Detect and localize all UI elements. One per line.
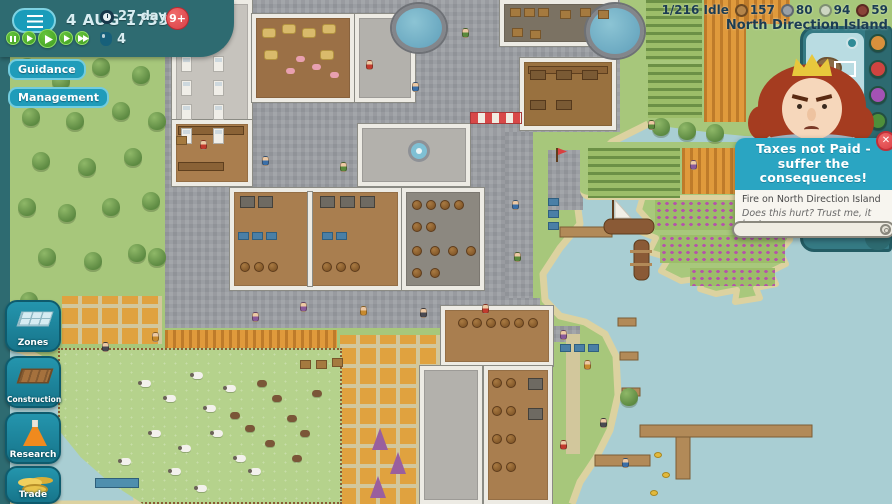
resource-value: 80	[796, 3, 813, 17]
bin	[252, 232, 263, 240]
resource-bricks: 59	[856, 3, 888, 17]
mach	[320, 196, 335, 208]
queen-mouth	[804, 126, 819, 133]
game-screen: 4 AUG 1733 27 days 9+ 4 1/216 Idle 157 8…	[0, 0, 892, 504]
bed	[181, 104, 192, 120]
bin	[548, 198, 559, 206]
play-icon	[45, 35, 53, 44]
ink-count: 4	[117, 32, 126, 47]
tree	[112, 102, 130, 120]
flag-pole	[556, 148, 558, 162]
pond	[586, 4, 644, 58]
crate	[176, 136, 187, 145]
crate	[512, 28, 523, 37]
hay	[282, 24, 296, 34]
bed	[181, 56, 192, 72]
barrel	[492, 434, 502, 444]
barrel	[466, 246, 476, 256]
barrel	[350, 262, 360, 272]
barrel	[430, 268, 440, 278]
footpath	[566, 334, 580, 454]
sheep	[140, 380, 151, 387]
sheep	[225, 385, 236, 392]
barrel	[254, 262, 264, 272]
gold	[662, 472, 670, 478]
market-awning	[470, 112, 522, 124]
cow	[245, 425, 255, 432]
villager	[512, 200, 519, 210]
compass-icon	[846, 37, 858, 49]
crate	[510, 8, 521, 17]
brewery	[441, 306, 553, 366]
bed	[213, 128, 224, 144]
queen-eye	[822, 104, 827, 109]
tree	[148, 248, 166, 266]
notification-badge[interactable]: 9+	[166, 7, 189, 30]
villager	[648, 120, 655, 130]
barrel	[336, 262, 346, 272]
table	[530, 100, 546, 110]
barrel	[412, 222, 422, 232]
resource-value: 94	[834, 3, 851, 17]
sheep	[120, 458, 131, 465]
tree	[142, 192, 160, 210]
tree	[38, 248, 56, 266]
barrel	[492, 462, 502, 472]
tree	[706, 124, 724, 142]
villager	[360, 306, 367, 316]
crate	[598, 10, 609, 19]
villager	[560, 330, 567, 340]
water-trough	[95, 478, 139, 488]
mach	[528, 408, 543, 420]
stone-icon	[781, 4, 794, 17]
trade-label: Trade	[7, 490, 59, 500]
barrel	[492, 406, 502, 416]
bin	[574, 344, 585, 352]
villager	[300, 302, 307, 312]
sheep	[180, 445, 191, 452]
sheep	[250, 468, 261, 475]
hay	[322, 24, 336, 34]
road	[505, 132, 533, 308]
fountain	[408, 140, 430, 162]
table	[530, 70, 546, 80]
bin	[238, 232, 249, 240]
tree	[148, 112, 166, 130]
construction-floor-icon	[17, 369, 54, 384]
villager	[690, 160, 697, 170]
villager	[366, 60, 373, 70]
cow	[257, 380, 267, 387]
fast-icon	[83, 35, 89, 42]
ink-pot-icon	[100, 32, 112, 46]
crate	[300, 360, 311, 369]
flower-farm	[660, 235, 785, 263]
farm-plot	[682, 148, 742, 194]
villager	[420, 308, 427, 318]
pig	[312, 64, 321, 70]
tree	[32, 152, 50, 170]
bed	[213, 80, 224, 96]
cow	[292, 455, 302, 462]
crate	[524, 8, 535, 17]
bin	[322, 232, 333, 240]
cow	[312, 390, 322, 397]
sheep	[150, 430, 161, 437]
resource-bar: 1/216 Idle 157 80 94 59 North Direction …	[662, 3, 888, 33]
barrel	[528, 318, 538, 328]
villager	[514, 252, 521, 262]
play-icon	[27, 35, 33, 42]
mach	[240, 196, 255, 208]
time-panel: 4 AUG 1733 27 days 9+ 4	[0, 0, 234, 57]
cow	[287, 415, 297, 422]
tree	[92, 58, 110, 76]
villager	[200, 140, 207, 150]
kitchen-counter	[178, 162, 224, 171]
flower-farm	[690, 268, 775, 286]
planks-icon	[819, 4, 832, 17]
pig	[286, 68, 295, 74]
pig	[296, 56, 305, 62]
resource-planks: 94	[819, 3, 851, 17]
sheep	[192, 372, 203, 379]
barrel	[322, 262, 332, 272]
villager	[102, 342, 109, 352]
mach	[360, 196, 375, 208]
scroll-curl-icon[interactable]	[880, 224, 891, 235]
farm-plot	[588, 148, 680, 198]
sheep	[235, 455, 246, 462]
barrel	[472, 318, 482, 328]
crate	[332, 358, 343, 367]
trade-button[interactable]: Trade	[5, 466, 61, 504]
coconuts-icon	[735, 4, 748, 17]
barrel	[506, 434, 516, 444]
barrel	[458, 318, 468, 328]
villager	[340, 162, 347, 172]
queen-eye	[797, 104, 802, 109]
barrel	[492, 378, 502, 388]
villager	[482, 304, 489, 314]
notification-title: Taxes not Paid - suffer the consequences…	[735, 138, 892, 190]
mach	[258, 196, 273, 208]
tree	[22, 108, 40, 126]
play-slow-button[interactable]	[22, 31, 36, 45]
scroll-edge	[732, 221, 892, 238]
villager	[412, 82, 419, 92]
stopwatch-icon	[100, 10, 114, 24]
bin	[548, 210, 559, 218]
barrel	[412, 200, 422, 210]
barrel	[430, 246, 440, 256]
crate	[538, 8, 549, 17]
villager	[262, 156, 269, 166]
island-name: North Direction Island	[726, 18, 888, 33]
mach	[528, 378, 543, 390]
barrel	[486, 318, 496, 328]
idle-count: 1/216 Idle	[662, 3, 729, 17]
hay	[302, 28, 316, 38]
table	[556, 100, 572, 110]
mach	[340, 196, 355, 208]
research-label: Research	[7, 450, 59, 460]
tree	[132, 66, 150, 84]
cow	[265, 440, 275, 447]
barrel	[268, 262, 278, 272]
villager	[462, 28, 469, 38]
barrel	[412, 268, 422, 278]
barrel	[240, 262, 250, 272]
cow	[300, 430, 310, 437]
sheep	[170, 468, 181, 475]
notification-bubble: Taxes not Paid - suffer the consequences…	[735, 138, 892, 235]
bin	[588, 344, 599, 352]
zones-grid-icon	[17, 312, 54, 327]
minimap-filter-wheat-icon[interactable]	[869, 34, 887, 52]
hay	[262, 28, 276, 38]
bed	[213, 56, 224, 72]
resource-value: 157	[750, 3, 775, 17]
tree	[66, 112, 84, 130]
play-button[interactable]	[38, 29, 57, 48]
villager	[560, 440, 567, 450]
barrel	[506, 406, 516, 416]
barrel	[448, 246, 458, 256]
bricks-icon	[856, 4, 869, 17]
villager	[152, 332, 159, 342]
courtyard	[420, 366, 482, 504]
research-button[interactable]: Research	[5, 412, 61, 464]
crate	[560, 10, 571, 19]
close-icon[interactable]: ✕	[876, 131, 892, 151]
resource-value: 59	[871, 3, 888, 17]
barrel	[426, 200, 436, 210]
villager	[252, 312, 259, 322]
fastest-button[interactable]	[75, 31, 89, 45]
crate	[580, 8, 591, 17]
pond	[392, 4, 446, 52]
zones-label: Zones	[7, 338, 59, 348]
barrel	[426, 222, 436, 232]
crate	[530, 30, 541, 39]
cow	[230, 412, 240, 419]
crown-icon	[792, 54, 832, 76]
construction-label: Construction	[7, 395, 59, 404]
inner-wall	[308, 192, 312, 286]
bin	[266, 232, 277, 240]
management-button[interactable]: Management	[8, 87, 109, 108]
villager	[600, 418, 607, 428]
tree	[124, 148, 142, 166]
guidance-button[interactable]: Guidance	[8, 59, 86, 80]
pause-button[interactable]	[6, 31, 20, 45]
zones-button[interactable]: Zones	[5, 300, 61, 352]
barrel	[500, 318, 510, 328]
pig	[330, 72, 339, 78]
barrel	[454, 200, 464, 210]
bed	[181, 80, 192, 96]
villager	[622, 458, 629, 468]
hay	[320, 50, 334, 60]
tree	[78, 158, 96, 176]
fast-forward-button[interactable]	[59, 31, 73, 45]
sheep	[212, 430, 223, 437]
hay	[264, 50, 278, 60]
wheat-farm	[62, 296, 162, 344]
bed	[213, 104, 224, 120]
sheep	[205, 405, 216, 412]
sheep	[165, 395, 176, 402]
table	[556, 70, 572, 80]
construction-button[interactable]: Construction	[5, 356, 61, 408]
farm-plot	[165, 330, 337, 348]
tree	[102, 198, 120, 216]
bin	[548, 222, 559, 230]
table	[582, 70, 598, 80]
research-flask-icon	[23, 420, 47, 446]
tree	[128, 244, 146, 262]
hamburger-icon	[27, 15, 43, 28]
tree	[620, 388, 638, 406]
crate	[316, 360, 327, 369]
tree	[678, 122, 696, 140]
gold	[650, 490, 658, 496]
play-icon	[64, 35, 70, 42]
barrel	[506, 378, 516, 388]
resource-coconuts: 157	[735, 3, 775, 17]
tree	[18, 198, 36, 216]
queen-nose	[807, 108, 816, 121]
tree	[58, 204, 76, 222]
villager	[584, 360, 591, 370]
resource-stone: 80	[781, 3, 813, 17]
gold	[654, 452, 662, 458]
cow	[272, 395, 282, 402]
barrel	[440, 200, 450, 210]
notification-event: Fire on North Direction Island	[742, 194, 885, 205]
farm-plot	[648, 64, 702, 118]
sheep	[196, 485, 207, 492]
bin	[560, 344, 571, 352]
bin	[336, 232, 347, 240]
barrel	[412, 246, 422, 256]
barrel	[506, 462, 516, 472]
barrel	[514, 318, 524, 328]
tree	[84, 252, 102, 270]
